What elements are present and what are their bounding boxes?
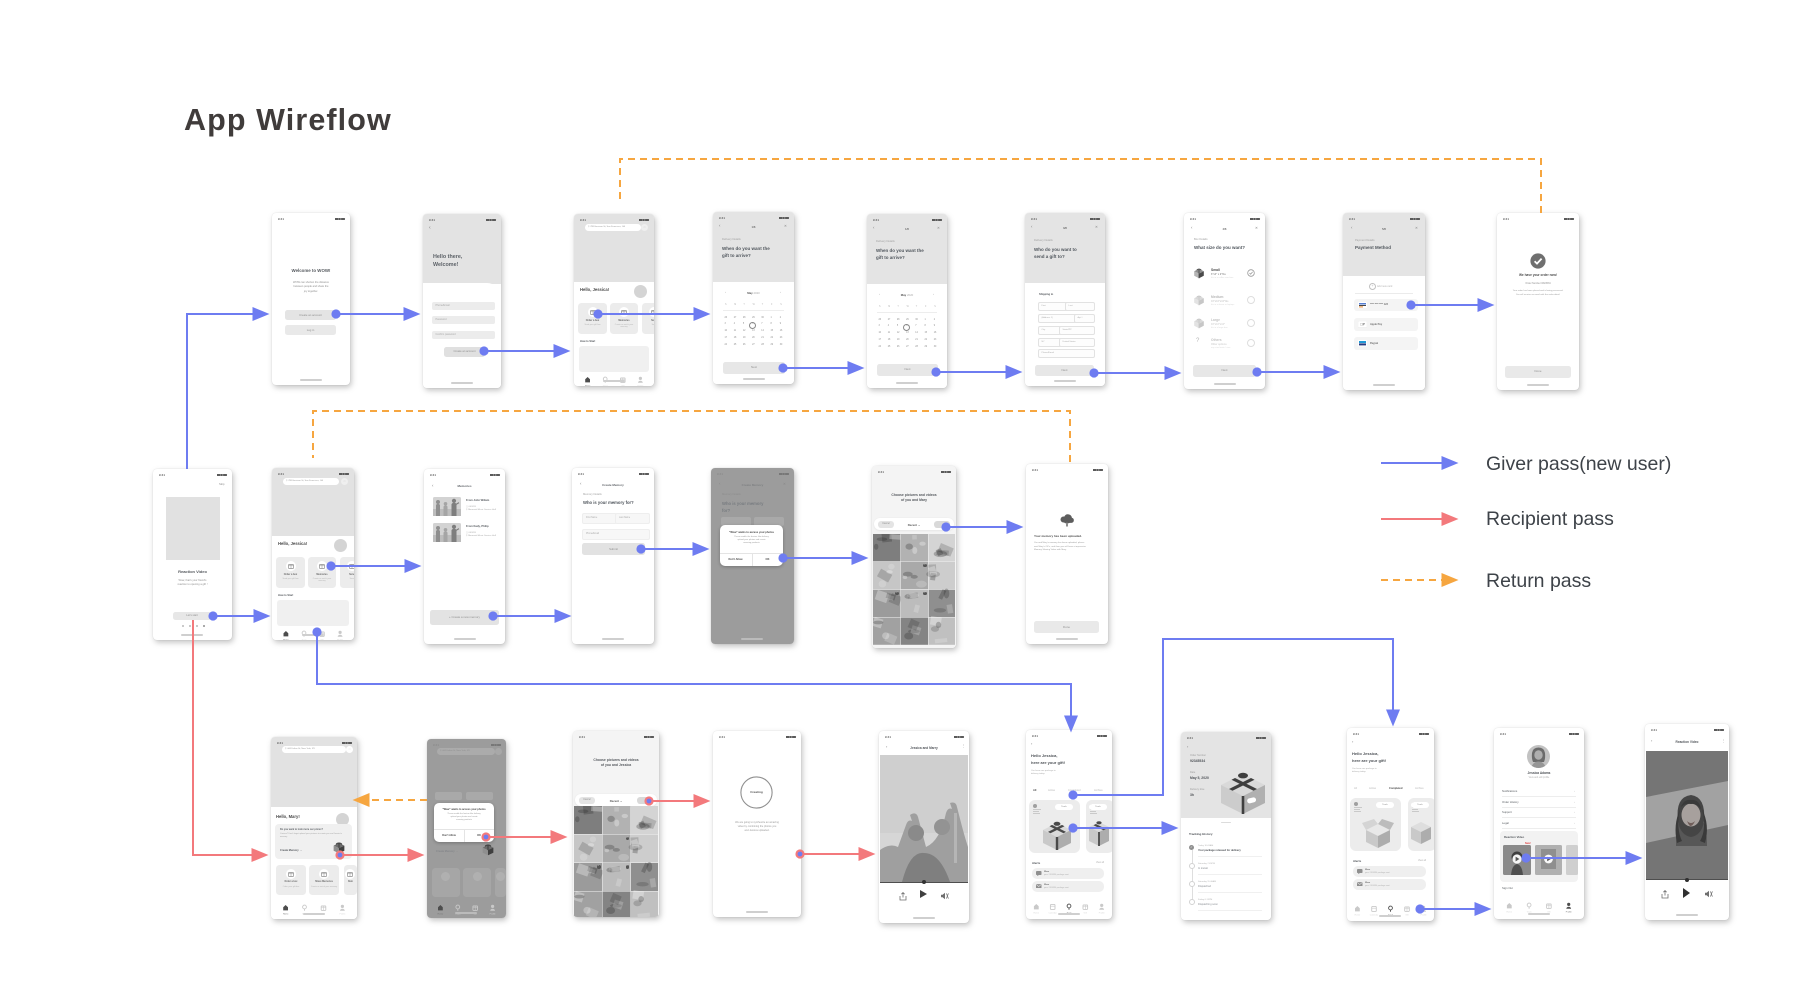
svg-text:Home: Home [283,639,289,640]
svg-text:Home: Home [585,385,591,386]
svg-text:Home: Home [1507,912,1513,914]
svg-text:Track: Track [301,638,307,640]
svg-text:Profile: Profile [1421,914,1428,917]
svg-text:Home: Home [283,914,289,916]
svg-text:Profile: Profile [1099,912,1106,915]
svg-text:Gift: Gift [1405,914,1409,917]
svg-text:Home: Home [438,914,444,916]
svg-text:Track: Track [603,384,609,386]
svg-text:Calendar: Calendar [1048,912,1057,915]
svg-text:Gift: Gift [1084,912,1088,915]
svg-text:Home: Home [1355,915,1361,917]
svg-text:Profile: Profile [337,638,344,640]
svg-text:Gift: Gift [621,384,625,386]
svg-text:Home: Home [1034,913,1040,915]
svg-text:Calendar: Calendar [1370,914,1379,917]
svg-text:Profile: Profile [339,913,346,916]
svg-text:P: P [1360,323,1366,327]
svg-text:Gift: Gift [320,638,324,640]
svg-text:Profile: Profile [490,913,497,916]
svg-text:Profile: Profile [1566,911,1573,914]
svg-text:Profile: Profile [637,384,644,386]
